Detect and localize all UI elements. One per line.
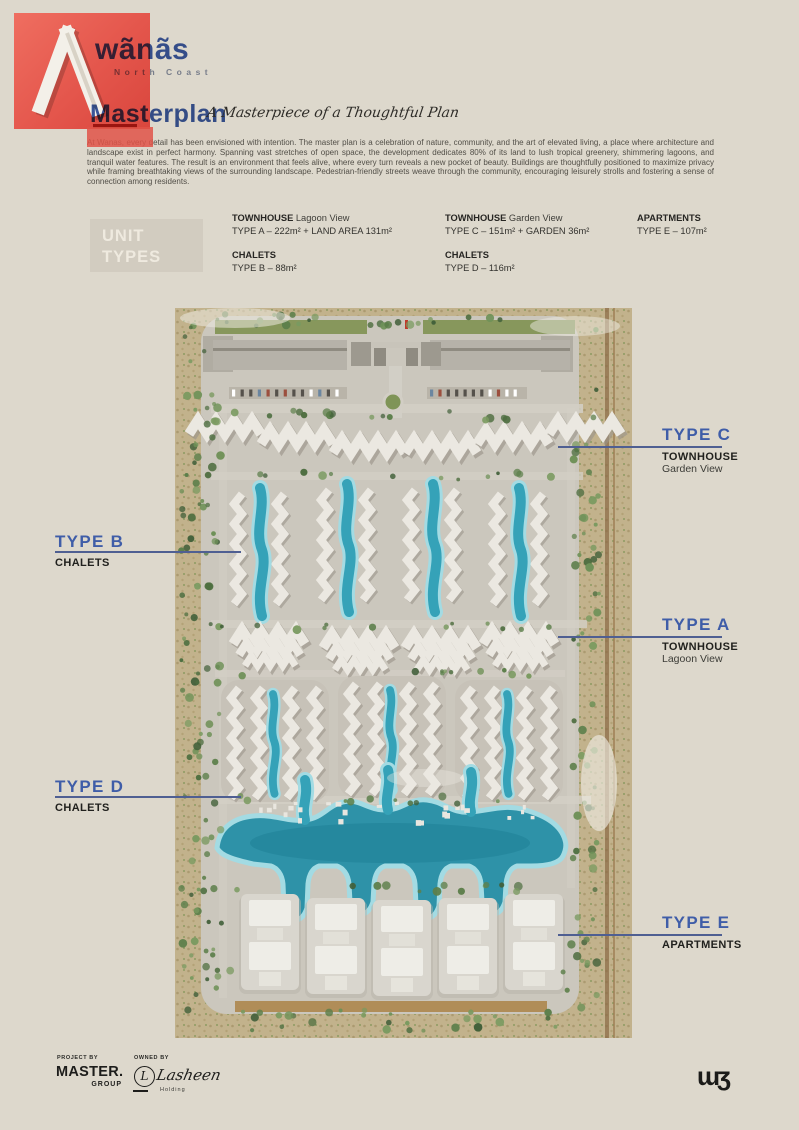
- page: wãnãs North Coast Masterplan A Masterpie…: [0, 0, 799, 1130]
- masterplan-map: [175, 308, 632, 1038]
- type-e-title: TYPE E: [662, 913, 730, 933]
- unit-spec: TYPE C – 151m² + GARDEN 36m²: [445, 226, 589, 236]
- type-b-category: CHALETS: [55, 557, 110, 569]
- owner-logo-underline: [133, 1090, 148, 1092]
- intro-paragraph: At Wanas, every detail has been envision…: [87, 138, 714, 187]
- brand-monogram: ɯʒ: [697, 1061, 728, 1092]
- unit-category: TOWNHOUSE: [232, 213, 293, 223]
- type-c-variant: Garden View: [662, 463, 723, 475]
- owner-sub: Holding: [160, 1087, 186, 1093]
- unit-category: TOWNHOUSE: [445, 213, 506, 223]
- unit-category: CHALETS: [232, 250, 276, 260]
- unit-variant: Lagoon View: [296, 213, 350, 223]
- unit-spec: TYPE D – 116m²: [445, 263, 589, 273]
- type-e-category: APARTMENTS: [662, 939, 742, 951]
- owned-by-label: OWNED BY: [134, 1055, 169, 1061]
- unit-category: CHALETS: [445, 250, 489, 260]
- project-by-label: PROJECT BY: [57, 1055, 98, 1061]
- unit-col-2: TOWNHOUSE Garden View TYPE C – 151m² + G…: [445, 213, 589, 287]
- owner-logo-icon: L: [134, 1066, 155, 1087]
- unit-variant: Garden View: [509, 213, 563, 223]
- brand-tagline: North Coast: [114, 67, 212, 77]
- unit-spec: TYPE A – 222m² + LAND AREA 131m²: [232, 226, 392, 236]
- unit-category: APARTMENTS: [637, 213, 701, 223]
- owner-name: Lasheen: [155, 1066, 223, 1084]
- page-subtitle: A Masterpiece of a Thoughtful Plan: [206, 105, 460, 121]
- project-by-logo: MASTER.: [56, 1064, 123, 1080]
- type-a-title: TYPE A: [662, 615, 731, 635]
- unit-box-line1: UNIT: [102, 226, 203, 247]
- unit-group-e: APARTMENTS TYPE E – 107m²: [637, 213, 707, 236]
- type-b-pointer-line: [55, 551, 241, 553]
- type-d-title: TYPE D: [55, 777, 124, 797]
- brand-name: wãnãs: [95, 33, 189, 67]
- unit-group-a: TOWNHOUSE Lagoon View TYPE A – 222m² + L…: [232, 213, 392, 236]
- apartment-blocks-type-e: [239, 894, 565, 1000]
- unit-types-box: UNIT TYPES: [90, 219, 203, 272]
- type-d-pointer-line: [55, 796, 241, 798]
- type-a-pointer-line: [558, 636, 722, 638]
- unit-group-c: TOWNHOUSE Garden View TYPE C – 151m² + G…: [445, 213, 589, 236]
- unit-group-b: CHALETS TYPE B – 88m²: [232, 250, 392, 273]
- type-a-category: TOWNHOUSE: [662, 641, 738, 653]
- type-a-variant: Lagoon View: [662, 653, 723, 665]
- bottom-parking: [235, 1001, 547, 1012]
- unit-spec: TYPE B – 88m²: [232, 263, 392, 273]
- unit-spec: TYPE E – 107m²: [637, 226, 707, 236]
- type-c-pointer-line: [558, 446, 722, 448]
- unit-group-d: CHALETS TYPE D – 116m²: [445, 250, 589, 273]
- unit-col-1: TOWNHOUSE Lagoon View TYPE A – 222m² + L…: [232, 213, 392, 287]
- type-e-pointer-line: [558, 934, 722, 936]
- project-by-sub: GROUP: [56, 1081, 122, 1088]
- type-b-title: TYPE B: [55, 532, 124, 552]
- type-d-category: CHALETS: [55, 802, 110, 814]
- unit-col-3: APARTMENTS TYPE E – 107m²: [637, 213, 707, 250]
- type-c-category: TOWNHOUSE: [662, 451, 738, 463]
- type-c-title: TYPE C: [662, 425, 731, 445]
- unit-box-line2: TYPES: [102, 247, 203, 268]
- red-highlight-overlay: [87, 127, 153, 147]
